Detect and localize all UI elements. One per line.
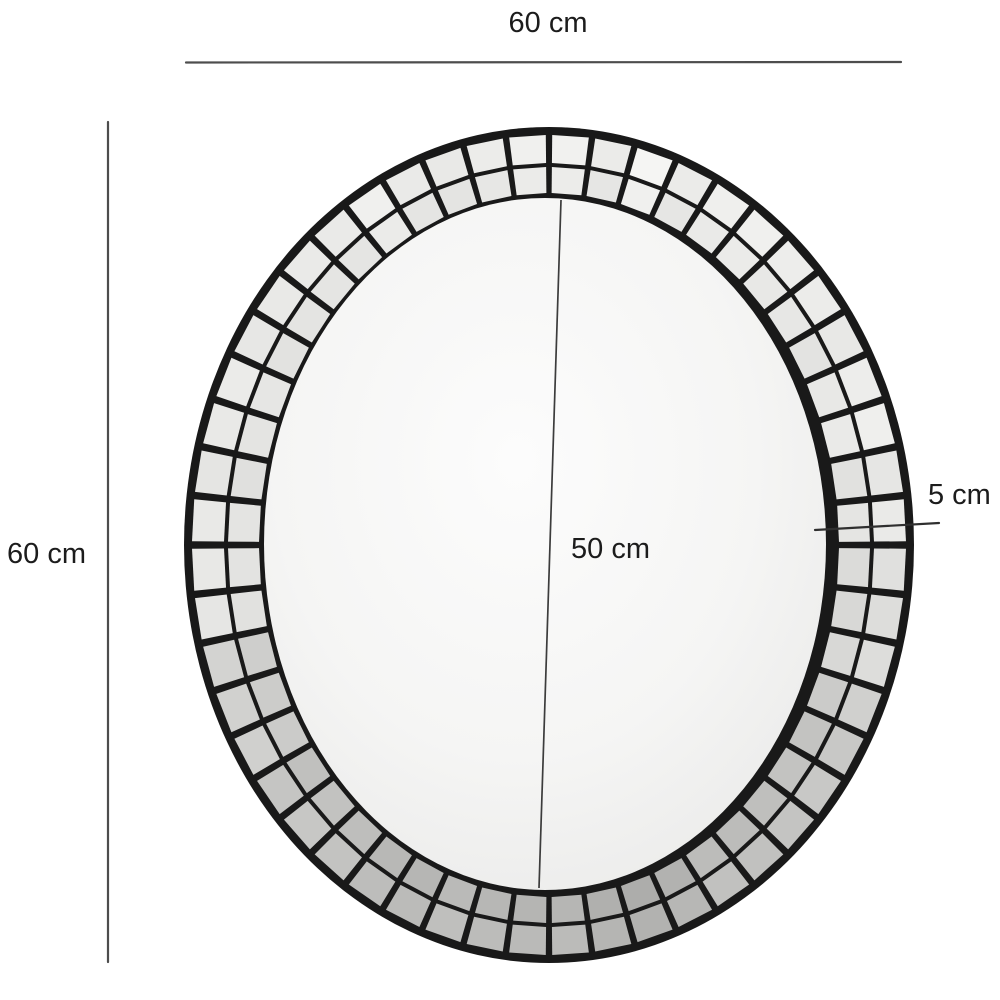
overall-height-label: 60 cm [7, 539, 86, 571]
frame-border-width-label: 5 cm [928, 480, 991, 512]
mosaic-tile [509, 135, 546, 165]
width-dimension-line [186, 62, 901, 63]
mosaic-tile [195, 450, 233, 495]
inner-mirror-diameter-label: 50 cm [571, 534, 650, 566]
mirror-render-layer [184, 127, 914, 963]
mosaic-tile [231, 458, 267, 500]
mosaic-tile [872, 548, 906, 590]
mosaic-tile [831, 591, 867, 633]
mosaic-tile [552, 167, 585, 195]
mosaic-tile [192, 499, 226, 541]
mosaic-tile [231, 591, 267, 633]
mosaic-tile [513, 895, 546, 923]
mosaic-tile [831, 458, 867, 500]
mosaic-tile [195, 594, 233, 639]
mosaic-tile [509, 925, 546, 955]
mirror-illustration [0, 0, 1000, 1000]
mosaic-tile [865, 450, 903, 495]
mosaic-tile [552, 895, 585, 923]
mosaic-tile [865, 594, 903, 639]
product-dimension-diagram: 60 cm 60 cm 50 cm 5 cm [0, 0, 1000, 1000]
mosaic-tile [513, 167, 546, 195]
mosaic-tile [872, 499, 906, 541]
mosaic-tile [837, 548, 870, 587]
mosaic-tile [228, 548, 261, 587]
mosaic-tile [192, 548, 226, 590]
mosaic-tile [552, 135, 589, 165]
mosaic-tile [552, 925, 589, 955]
mirror-glass [264, 198, 826, 890]
mosaic-tile [837, 503, 870, 542]
overall-width-label: 60 cm [509, 8, 588, 40]
mosaic-tile [228, 503, 261, 542]
